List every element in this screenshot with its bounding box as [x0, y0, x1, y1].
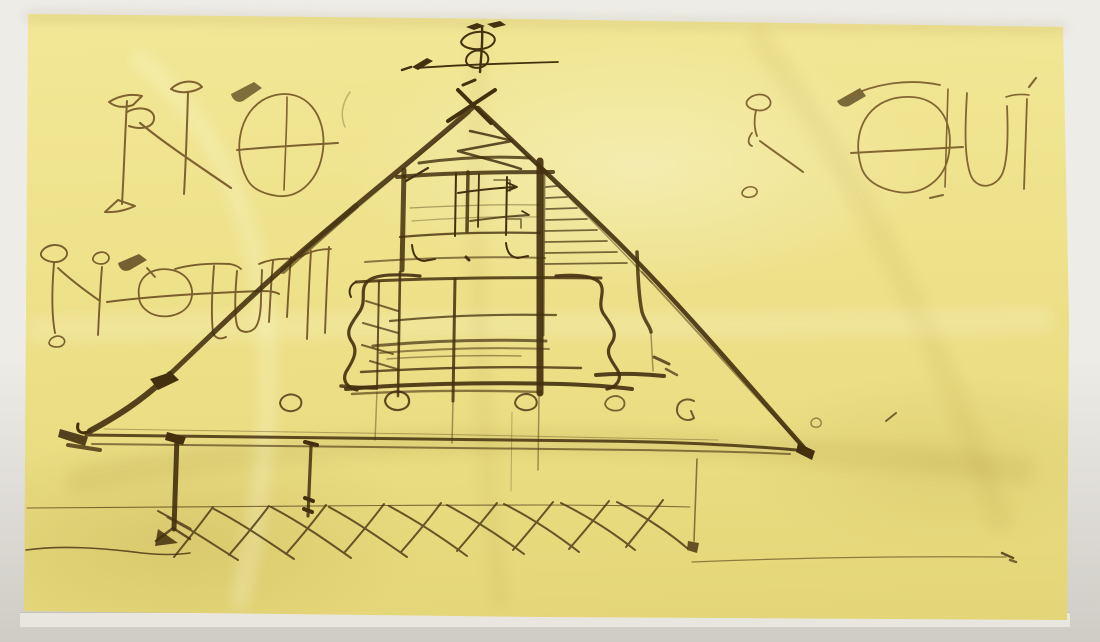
matted-artwork-photo: Freehand architectural ink sketch on yel… [0, 0, 1100, 642]
ground-hatching [158, 500, 687, 560]
left-eave-hook [78, 424, 90, 433]
ink-sketch-svg: Freehand architectural ink sketch on yel… [0, 0, 1100, 642]
ladder-rungs [545, 186, 627, 264]
